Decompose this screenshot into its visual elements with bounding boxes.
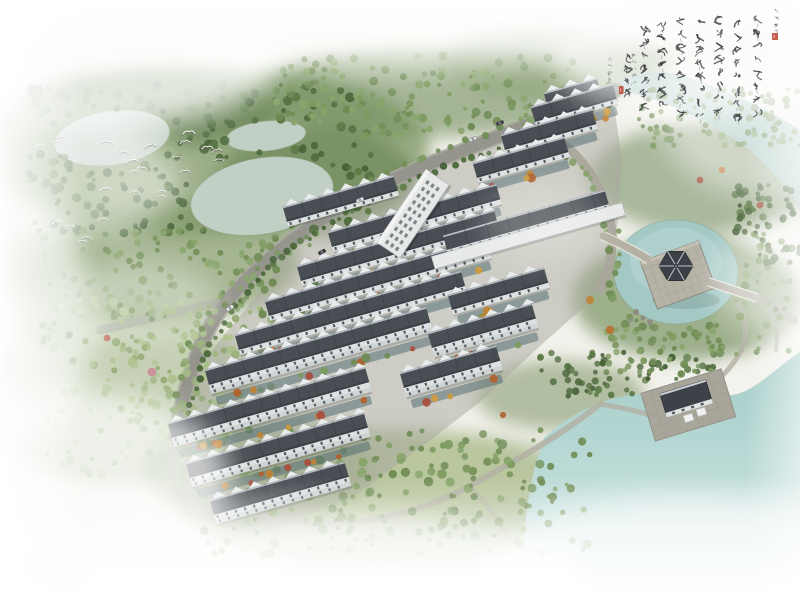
- rendering-frame: [0, 0, 800, 600]
- accent-tree: [500, 412, 506, 418]
- accent-tree: [606, 326, 614, 334]
- accent-tree: [148, 368, 157, 377]
- seal-stamp: [619, 86, 624, 94]
- accent-tree: [586, 296, 594, 304]
- seal-stamp: [772, 33, 778, 40]
- masterplan-rendering: [0, 0, 800, 600]
